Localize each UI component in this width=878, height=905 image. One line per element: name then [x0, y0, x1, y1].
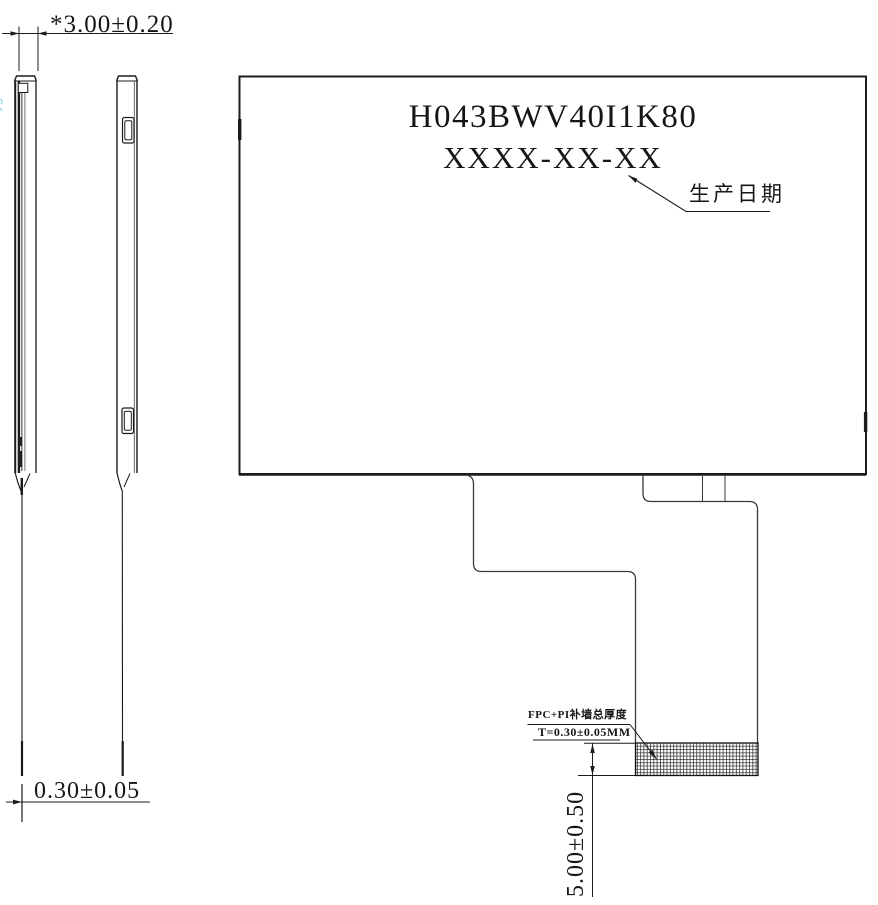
fpc-outline	[466, 475, 758, 744]
part-number-label: H043BWV40I1K80	[239, 101, 867, 134]
side-view-right	[117, 76, 138, 776]
stiffener-hatch	[636, 743, 759, 776]
tape-mark	[19, 451, 22, 467]
arrowhead	[13, 800, 22, 805]
production-date-label: 生产日期	[689, 184, 785, 205]
tape-mark	[19, 437, 22, 446]
dim-module-thickness-label: *3.00±0.20	[50, 12, 174, 37]
arrowhead	[38, 31, 47, 36]
drawing-linework	[0, 0, 878, 905]
arrowhead	[11, 31, 20, 36]
drawing-sheet: *3.00±0.20 H043BWV40I1K80 XXXX-XX-XX 生产日…	[0, 0, 878, 905]
fpc-note-line1: FPC+PI补墙总厚度	[528, 710, 627, 721]
date-code-label: XXXX-XX-XX	[239, 142, 867, 173]
top-notch	[18, 83, 28, 92]
side-view-left	[15, 76, 37, 776]
arrowhead	[590, 766, 595, 775]
arrowhead	[590, 744, 595, 753]
dim-fpc-thickness-label: 0.30±0.05	[34, 779, 140, 803]
fpc-note-line2: T=0.30±0.05MM	[538, 726, 631, 738]
dim-stiffener-height-label: 5.00±0.50	[564, 791, 588, 897]
edge-artifact	[0, 99, 3, 111]
back-view-outline	[239, 77, 866, 475]
